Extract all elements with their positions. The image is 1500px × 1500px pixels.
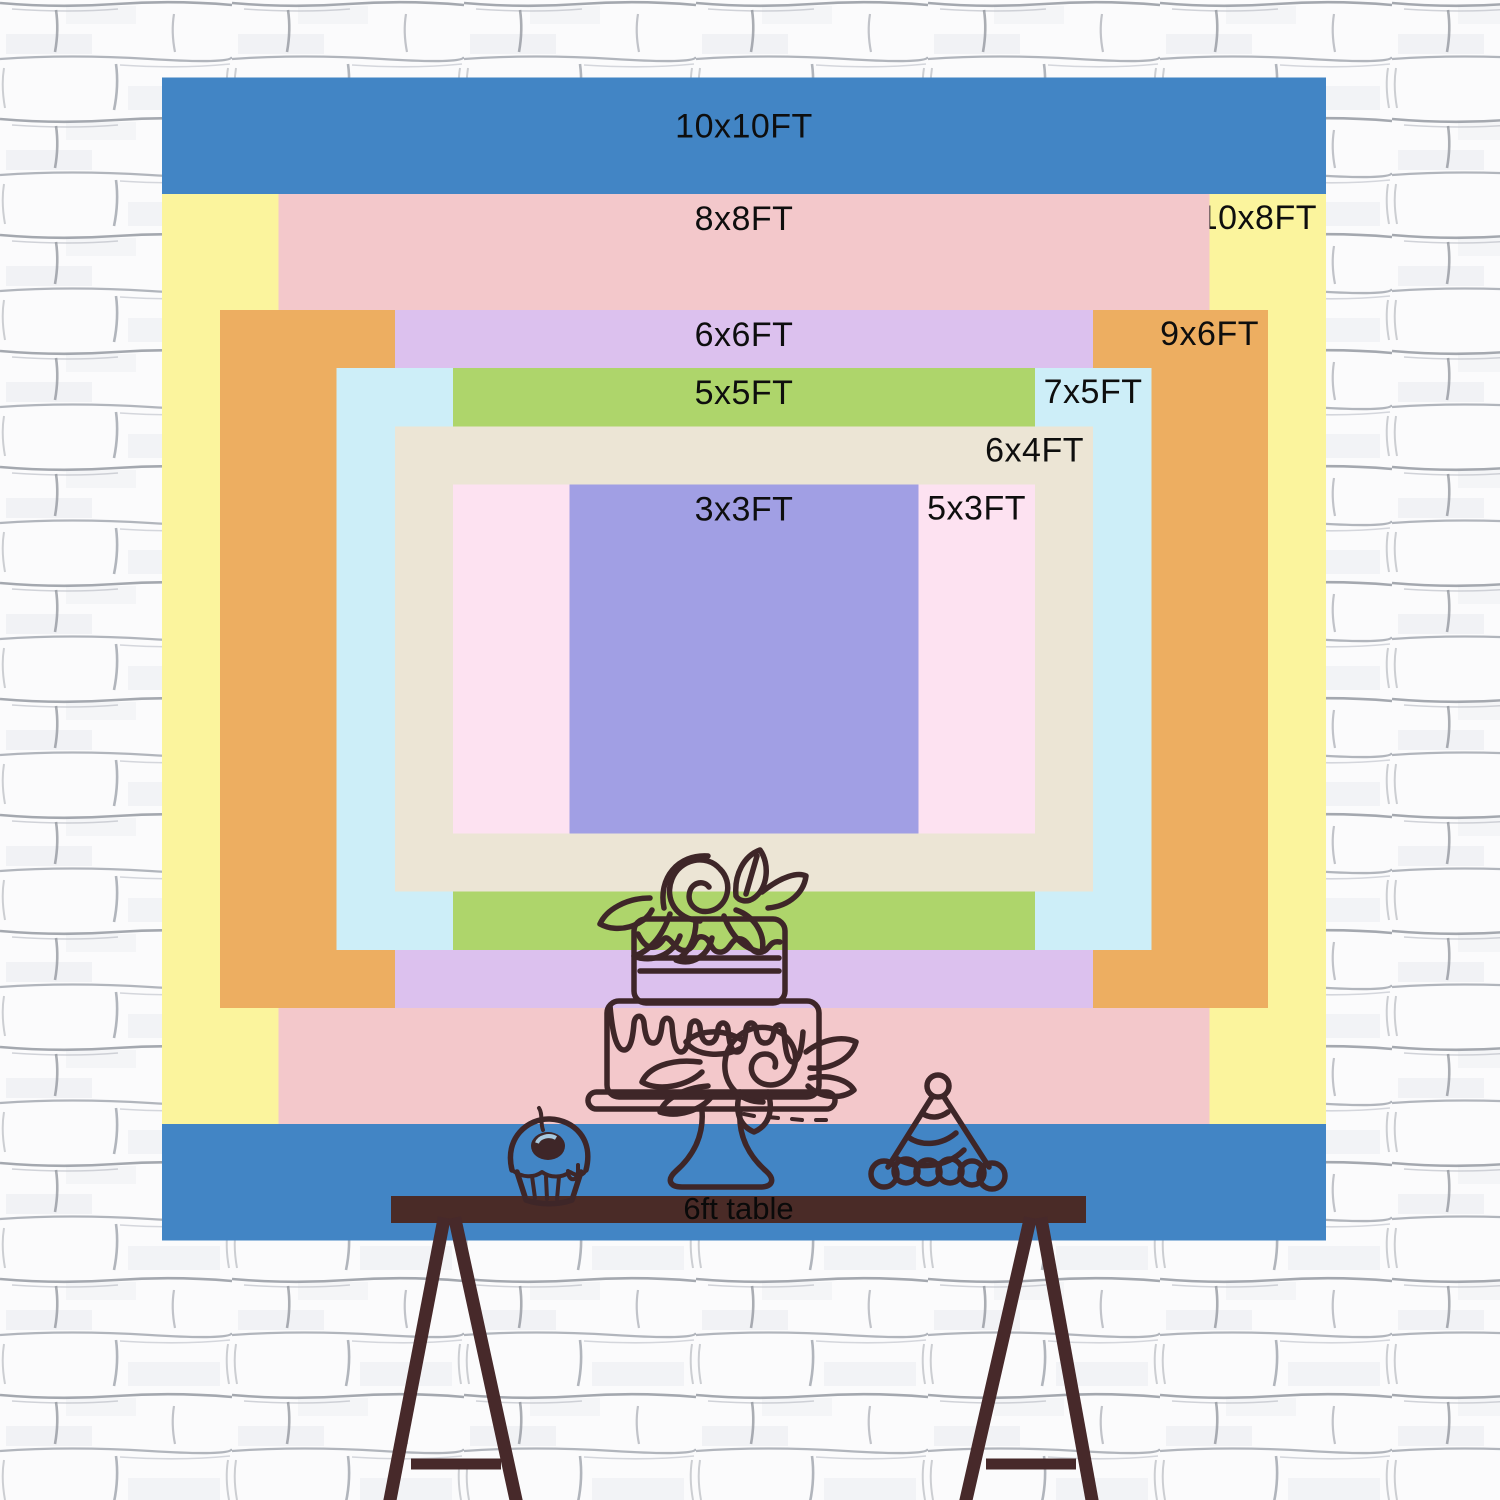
size-label-9x6ft: 9x6FT (1160, 316, 1259, 352)
size-label-8x8ft: 8x8FT (279, 201, 1210, 237)
size-label-5x5ft: 5x5FT (453, 375, 1035, 411)
size-label-5x3ft: 5x3FT (927, 490, 1026, 526)
size-label-10x10ft: 10x10FT (162, 108, 1326, 144)
backdrop-size-chart: 10x10FT10x8FT8x8FT9x6FT6x6FT7x5FT5x5FT6x… (0, 0, 1500, 1500)
size-rect-3x3ft: 3x3FT (570, 484, 919, 833)
table-length-label: 6ft table (391, 1192, 1086, 1226)
size-label-3x3ft: 3x3FT (570, 491, 919, 527)
backdrop-panel: 10x10FT10x8FT8x8FT9x6FT6x6FT7x5FT5x5FT6x… (162, 77, 1326, 1240)
size-label-7x5ft: 7x5FT (1044, 374, 1143, 410)
size-label-6x6ft: 6x6FT (395, 317, 1093, 353)
size-label-6x4ft: 6x4FT (985, 432, 1084, 468)
size-label-10x8ft: 10x8FT (1199, 200, 1317, 236)
